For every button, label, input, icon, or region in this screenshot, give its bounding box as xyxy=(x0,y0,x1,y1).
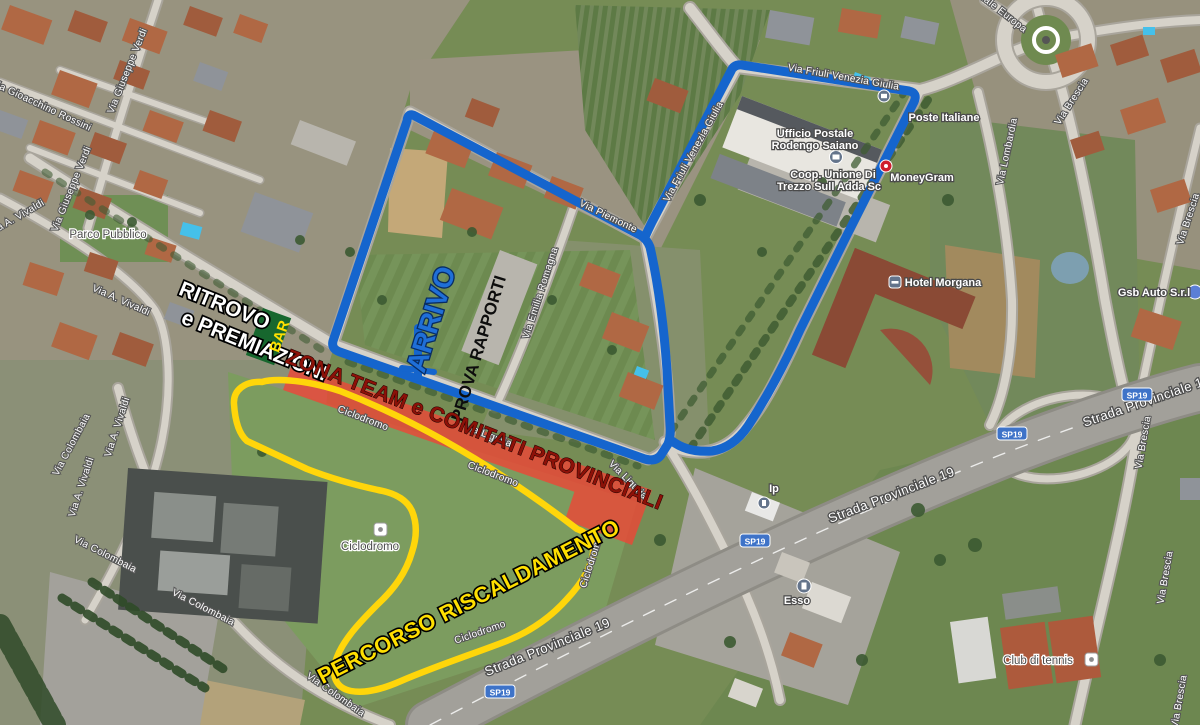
sp19-shield: SP19 xyxy=(740,534,770,547)
ip-fuel-icon[interactable] xyxy=(758,497,770,509)
sp19-shield: SP19 xyxy=(997,427,1027,440)
poi-label[interactable]: Parco Pubblico xyxy=(69,229,146,241)
ciclodromo-icon[interactable] xyxy=(374,523,387,536)
map-canvas[interactable]: Via Gioacchino Rossini Via Giuseppe Verd… xyxy=(0,0,1200,725)
poi-label[interactable]: Esso xyxy=(784,595,811,607)
poi-label[interactable]: Rodengo Saiano xyxy=(772,140,859,152)
poi-label[interactable]: Poste Italiane xyxy=(909,112,980,124)
poste-italiane-icon[interactable] xyxy=(878,90,890,102)
poi-label[interactable]: Ciclodromo xyxy=(341,541,399,553)
shield-label: SP19 xyxy=(1127,391,1148,401)
poi-label[interactable]: Ip xyxy=(769,483,779,495)
poi-label[interactable]: Club di tennis xyxy=(1003,655,1073,667)
post-office-icon[interactable] xyxy=(830,151,843,164)
satellite-map: Via Gioacchino Rossini Via Giuseppe Verd… xyxy=(0,0,1200,725)
poi-label[interactable]: Gsb Auto S.r.l xyxy=(1118,287,1190,299)
shield-label: SP19 xyxy=(1002,430,1023,440)
poi-label[interactable]: MoneyGram xyxy=(890,172,954,184)
poi-label[interactable]: Coop. Unione Di xyxy=(790,169,876,181)
poi-label[interactable]: Trezzo Sull Adda Sc xyxy=(777,181,881,193)
shield-label: SP19 xyxy=(745,537,766,547)
shield-label: SP19 xyxy=(490,688,511,698)
factory-building xyxy=(118,468,327,624)
poi-label[interactable]: Ufficio Postale xyxy=(777,128,853,140)
sp19-shield: SP19 xyxy=(485,685,515,698)
tennis-icon[interactable] xyxy=(1085,653,1098,666)
hotel-icon[interactable] xyxy=(889,276,901,288)
esso-fuel-icon[interactable] xyxy=(797,579,811,593)
sp19-shield: SP19 xyxy=(1122,388,1152,401)
poi-label[interactable]: Hotel Morgana xyxy=(905,277,982,289)
moneygram-icon[interactable] xyxy=(880,160,892,172)
